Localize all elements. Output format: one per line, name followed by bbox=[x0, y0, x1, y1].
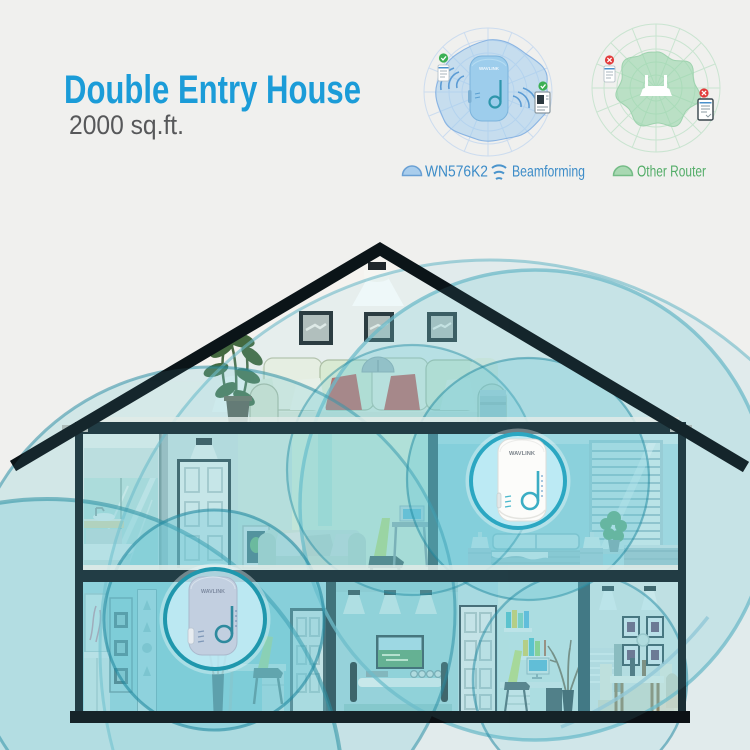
svg-text:WAVLINK: WAVLINK bbox=[201, 589, 225, 595]
svg-text:Beamforming: Beamforming bbox=[512, 164, 585, 181]
svg-text:Other Router: Other Router bbox=[637, 164, 707, 181]
svg-text:Double Entry House: Double Entry House bbox=[64, 68, 361, 112]
svg-text:WN576K2: WN576K2 bbox=[425, 164, 488, 181]
svg-text:WAVLINK: WAVLINK bbox=[509, 451, 535, 457]
svg-text:WAVLINK: WAVLINK bbox=[479, 66, 500, 71]
svg-text:2000 sq.ft.: 2000 sq.ft. bbox=[69, 110, 184, 140]
